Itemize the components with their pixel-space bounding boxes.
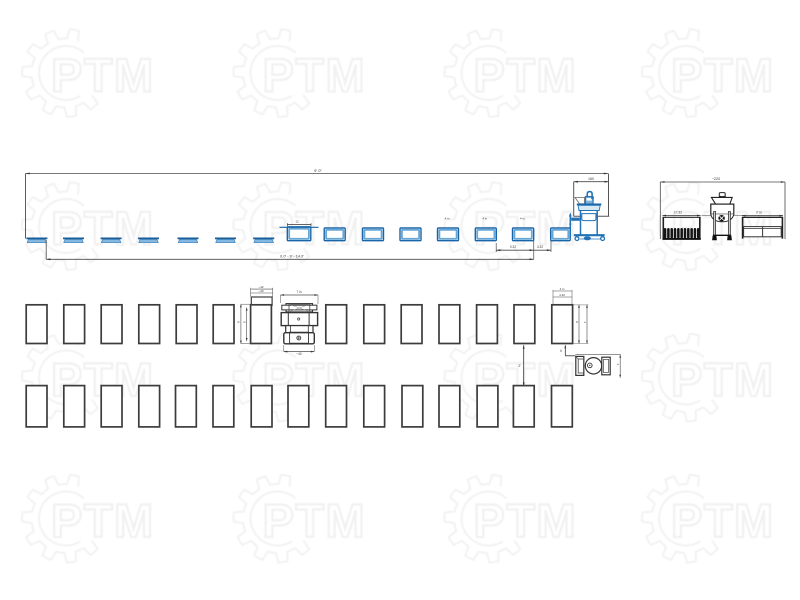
svg-text:4 in: 4 in: [520, 217, 525, 221]
svg-text:4 in: 4 in: [482, 217, 487, 221]
svg-text:4.32: 4.32: [559, 293, 565, 297]
svg-text:9′: 9′: [575, 320, 579, 323]
svg-text:4 in: 4 in: [445, 217, 450, 221]
svg-text:17.32: 17.32: [674, 210, 682, 214]
svg-text:0.0′ - 9′ - 14.0′: 0.0′ - 9′ - 14.0′: [280, 254, 304, 258]
svg-text:1′: 1′: [583, 320, 587, 323]
svg-text:~40: ~40: [296, 352, 302, 356]
svg-text:1′: 1′: [616, 362, 620, 365]
svg-text:~220: ~220: [712, 177, 721, 181]
svg-text:0′ in: 0′ in: [756, 210, 762, 214]
svg-text:9′ 0″: 9′ 0″: [314, 168, 322, 173]
svg-text:5′: 5′: [242, 320, 246, 323]
svg-text:7 in: 7 in: [296, 290, 301, 294]
svg-text:h: h: [560, 349, 562, 353]
svg-text:0.32: 0.32: [510, 245, 516, 249]
svg-text:4.32: 4.32: [537, 245, 543, 249]
svg-text:12: 12: [295, 220, 299, 224]
svg-text:4 in: 4 in: [560, 287, 565, 291]
svg-text:2′: 2′: [518, 364, 521, 368]
svg-text:9′: 9′: [237, 320, 241, 323]
svg-text:160: 160: [588, 177, 594, 181]
svg-text:~40: ~40: [258, 289, 263, 293]
